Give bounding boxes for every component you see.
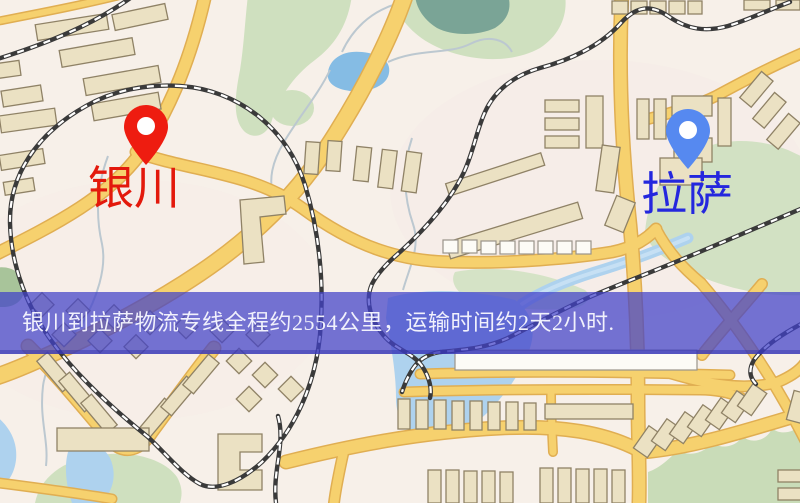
origin-label: 银川 xyxy=(88,166,180,212)
route-info-banner: 银川到拉萨物流专线全程约2554公里，运输时间约2天2小时. xyxy=(0,292,800,354)
route-info-text: 银川到拉萨物流专线全程约2554公里，运输时间约2天2小时. xyxy=(0,305,615,337)
destination-label: 拉萨 xyxy=(641,172,733,218)
map-canvas xyxy=(0,0,800,503)
route-map-image: 银川 拉萨 银川到拉萨物流专线全程约2554公里，运输时间约2天2小时. xyxy=(0,0,800,503)
origin-pin-icon xyxy=(123,104,169,166)
destination-pin-icon xyxy=(665,108,711,170)
